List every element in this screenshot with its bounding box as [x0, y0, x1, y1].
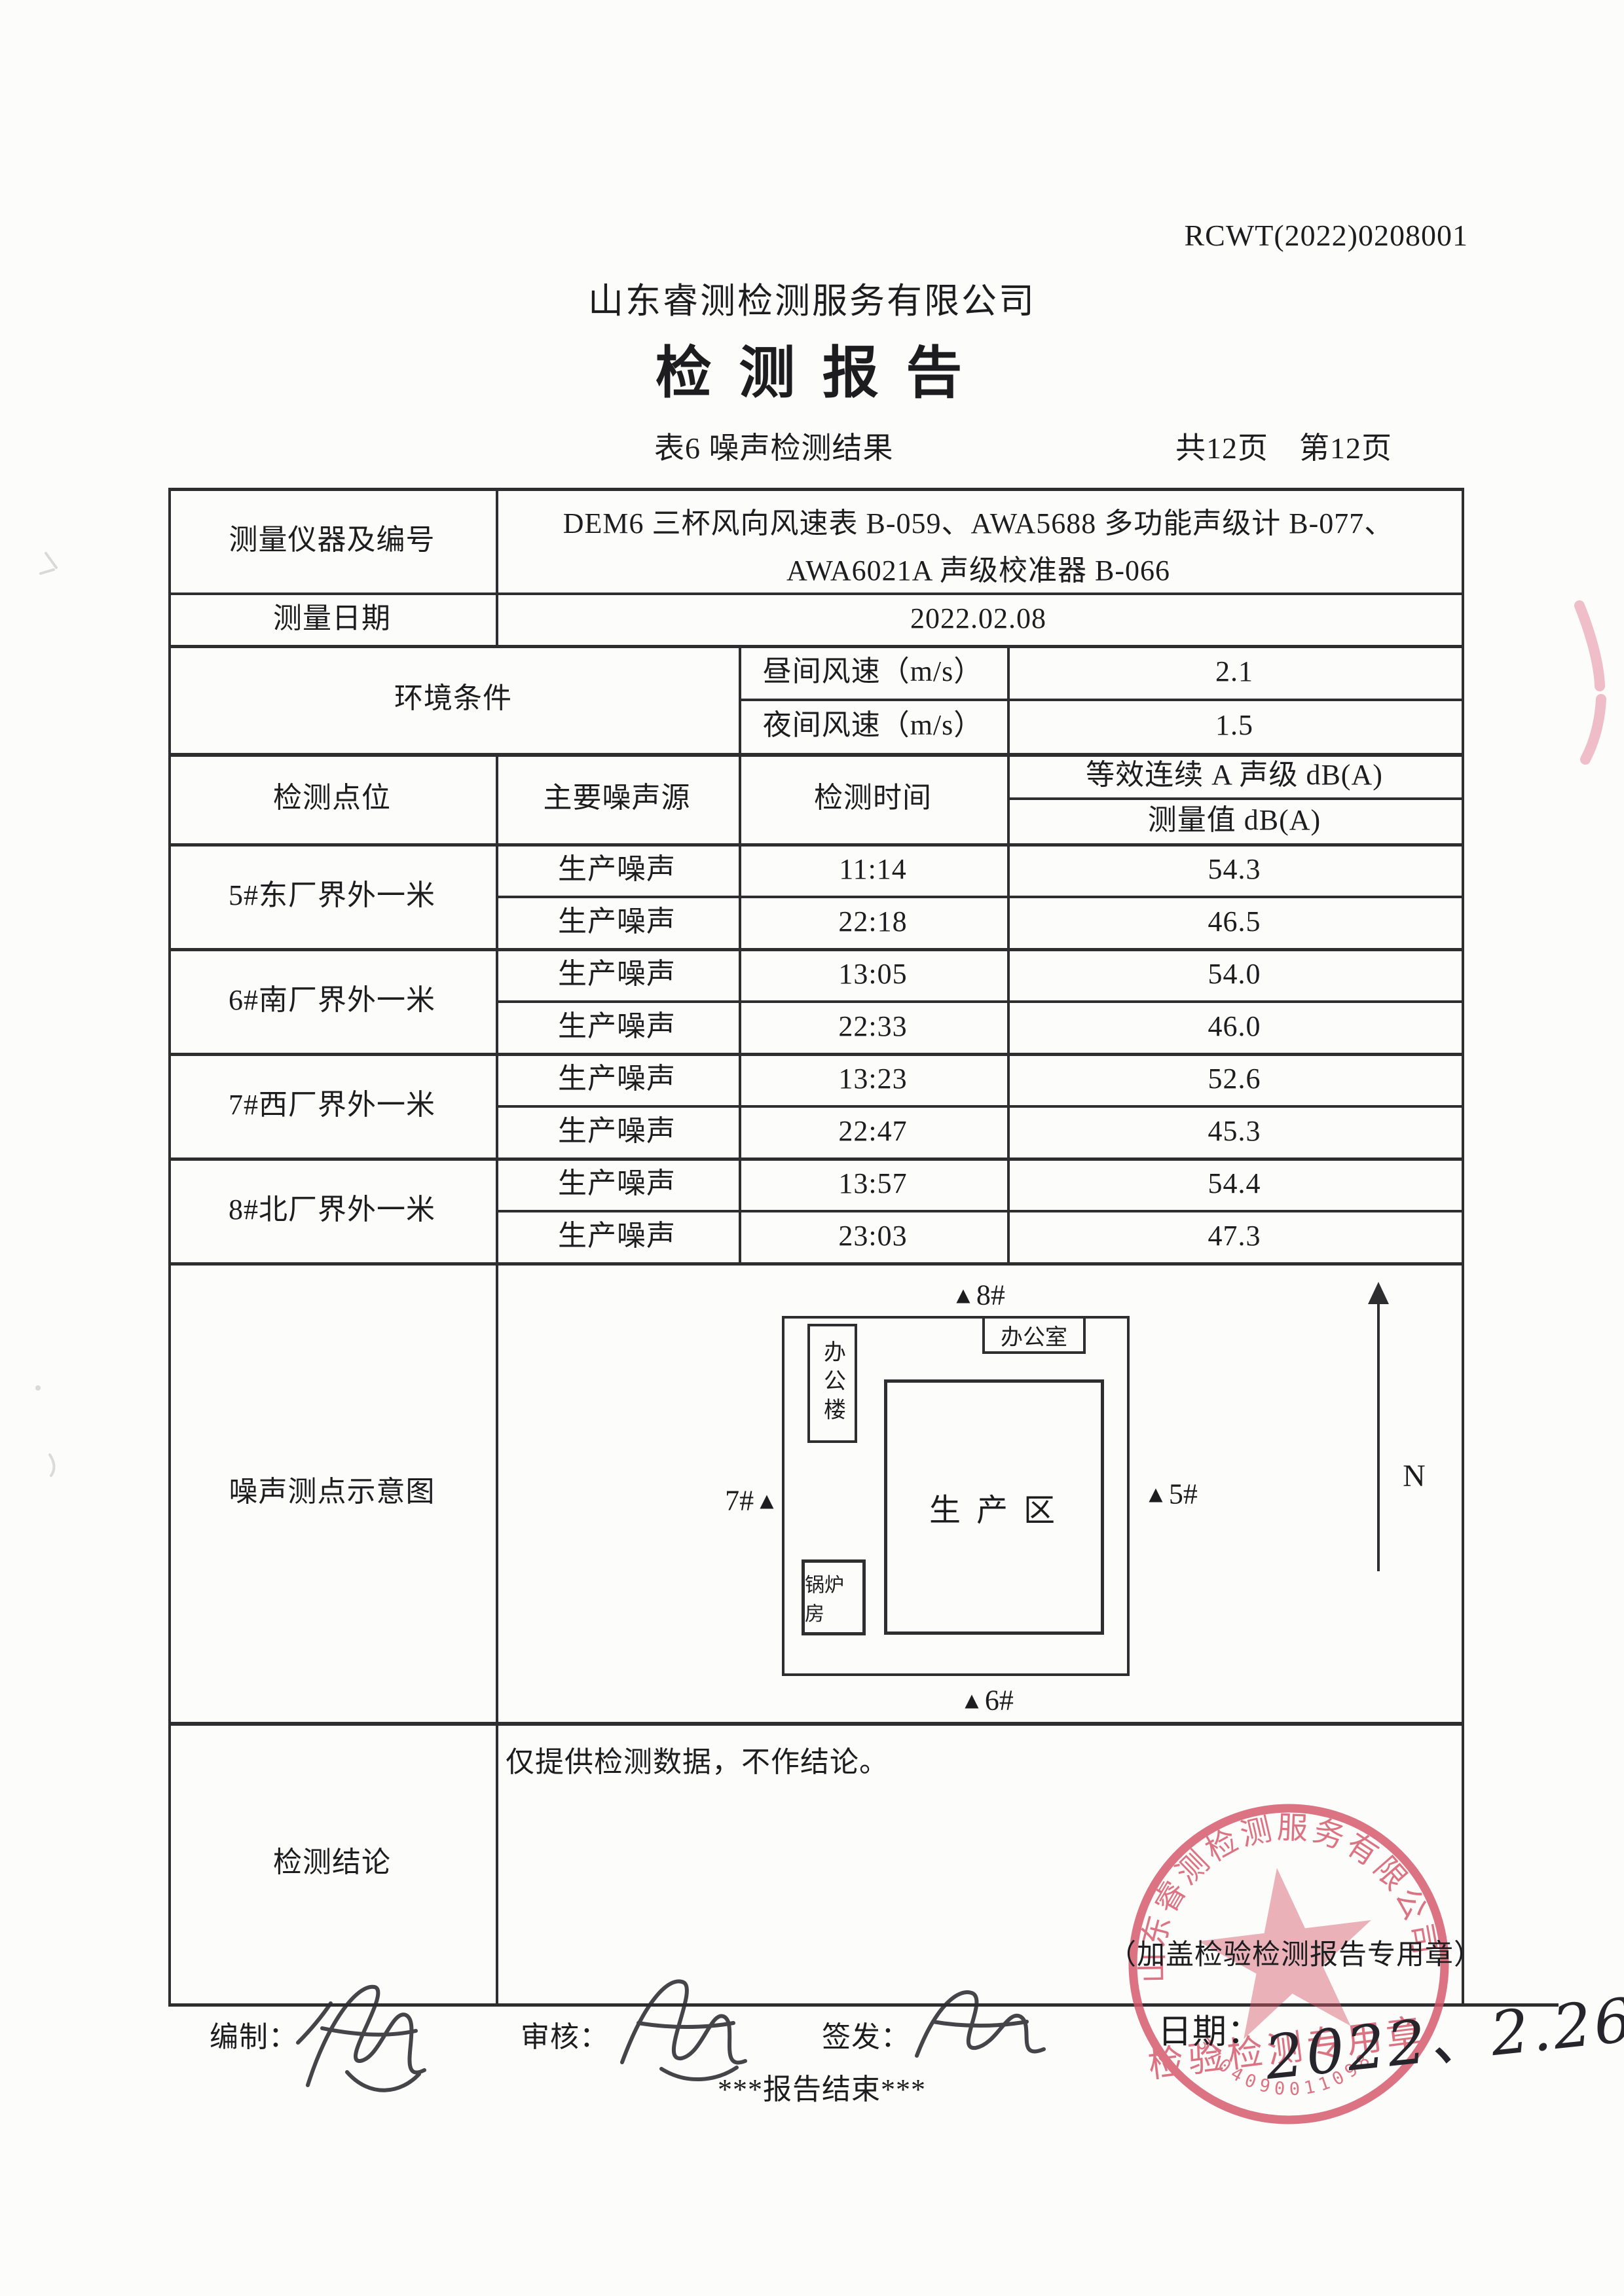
boiler-room-box: 锅炉房 [802, 1559, 866, 1635]
page-indicator: 共12页 第12页 [1175, 433, 1392, 464]
col-header-time: 检测时间 [814, 784, 932, 812]
grid-line [168, 1157, 1464, 1161]
col-header-source: 主要噪声源 [544, 784, 691, 812]
cell-day-wind-label: 昼间风速（m/s） [763, 657, 984, 686]
row-source: 生产噪声 [558, 1012, 676, 1041]
marker-label: 5# [1169, 1478, 1198, 1511]
grid-line [739, 699, 1464, 701]
row-time: 22:47 [838, 1117, 907, 1146]
col-header-value: 测量值 dB(A) [1148, 806, 1321, 835]
cell-instrument-label: 测量仪器及编号 [229, 526, 435, 555]
north-label: N [1403, 1461, 1426, 1492]
seal-note: （加盖检验检测报告专用章） [1108, 1932, 1483, 1973]
row-value: 45.3 [1208, 1117, 1261, 1146]
triangle-icon: ▲ [960, 1688, 984, 1712]
triangle-icon: ▲ [755, 1489, 779, 1512]
grid-line [496, 1105, 1464, 1108]
grid-line [496, 1210, 1464, 1212]
company-name: 山东睿测检测服务有限公司 [588, 283, 1036, 319]
row-source: 生产噪声 [558, 1222, 676, 1250]
cell-instrument-line2: AWA6021A 声级校准器 B-066 [786, 556, 1170, 585]
table-caption: 表6 噪声检测结果 [654, 433, 894, 464]
grid-line [496, 1000, 1464, 1003]
row-point-label: 8#北厂界外一米 [229, 1195, 435, 1224]
report-page: RCWT(2022)0208001 山东睿测检测服务有限公司 检 测 报 告 表… [0, 0, 1624, 2296]
row-source: 生产噪声 [558, 907, 676, 936]
grid-line [168, 592, 1464, 595]
grid-line [1007, 797, 1464, 800]
marker-label: 7# [725, 1484, 754, 1518]
marker-point-7: 7#▲ [725, 1484, 779, 1518]
row-value: 46.0 [1208, 1012, 1261, 1041]
office-building-box: 办公楼 [807, 1324, 857, 1443]
marker-point-6: ▲6# [960, 1684, 1014, 1717]
cell-date-label: 测量日期 [273, 604, 391, 633]
production-area-box: 生 产 区 [884, 1379, 1104, 1635]
grid-line [168, 948, 1464, 951]
issued-signature [917, 1992, 1044, 2056]
col-header-level: 等效连续 A 声级 dB(A) [1086, 761, 1383, 790]
cell-date-value: 2022.02.08 [910, 604, 1046, 633]
office-room-label: 办公室 [1001, 1319, 1067, 1351]
grid-line [168, 488, 171, 2007]
scan-artifact-marks [35, 553, 56, 1476]
production-area-label: 生 产 区 [929, 1484, 1059, 1530]
north-arrow-head-icon [1368, 1282, 1389, 1304]
reviewed-signature [622, 1981, 745, 2079]
marker-label: 8# [976, 1279, 1005, 1312]
prepared-label: 编制： [210, 2023, 298, 2052]
conclusion-text: 仅提供检测数据，不作结论。 [506, 1748, 889, 1777]
row-time: 23:03 [838, 1222, 907, 1250]
marker-point-5: ▲5# [1144, 1478, 1198, 1511]
grid-line [1007, 645, 1010, 1266]
row-point-label: 7#西厂界外一米 [229, 1091, 435, 1120]
grid-line [496, 488, 498, 645]
diagram-row-label: 噪声测点示意图 [229, 1478, 435, 1506]
grid-line [168, 843, 1464, 847]
row-source: 生产噪声 [558, 1065, 676, 1093]
grid-line [496, 753, 498, 2007]
office-building-label: 办公楼 [817, 1340, 849, 1427]
row-time: 13:57 [838, 1169, 907, 1198]
row-point-label: 6#南厂界外一米 [229, 986, 435, 1015]
cell-night-wind-value: 1.5 [1215, 711, 1253, 740]
grid-line [168, 488, 1464, 491]
grid-line [168, 1053, 1464, 1056]
row-source: 生产噪声 [558, 1117, 676, 1146]
row-point-label: 5#东厂界外一米 [229, 881, 435, 910]
report-title: 检 测 报 告 [655, 345, 969, 401]
row-value: 52.6 [1208, 1065, 1261, 1093]
row-value: 54.3 [1208, 855, 1261, 884]
col-header-point: 检测点位 [273, 784, 391, 812]
grid-line [496, 896, 1464, 898]
north-arrow-line [1377, 1303, 1380, 1571]
reviewed-label: 审核： [521, 2023, 609, 2052]
cell-env-label: 环境条件 [394, 684, 512, 713]
report-end-text: ***报告结束*** [718, 2075, 926, 2104]
issued-label: 签发： [822, 2023, 910, 2052]
triangle-icon: ▲ [1144, 1482, 1168, 1506]
row-value: 46.5 [1208, 907, 1261, 936]
row-source: 生产噪声 [558, 855, 676, 884]
triangle-icon: ▲ [951, 1283, 975, 1307]
row-source: 生产噪声 [558, 960, 676, 989]
office-room-box: 办公室 [982, 1316, 1086, 1354]
row-source: 生产噪声 [558, 1169, 676, 1198]
marker-label: 6# [985, 1684, 1014, 1717]
grid-line [739, 645, 741, 1266]
grid-line [168, 645, 1464, 648]
row-time: 13:23 [838, 1065, 907, 1093]
conclusion-row-label: 检测结论 [273, 1848, 391, 1877]
marker-point-8: ▲8# [951, 1279, 1005, 1312]
grid-line [168, 753, 1464, 757]
grid-line [168, 1262, 1464, 1266]
date-label: 日期： [1158, 2016, 1262, 2050]
cell-instrument-line1: DEM6 三杯风向风速表 B-059、AWA5688 多功能声级计 B-077、 [563, 509, 1393, 538]
row-value: 54.0 [1208, 960, 1261, 989]
cell-day-wind-value: 2.1 [1215, 657, 1253, 686]
row-value: 54.4 [1208, 1169, 1261, 1198]
report-number: RCWT(2022)0208001 [1184, 221, 1468, 251]
row-time: 22:33 [838, 1012, 907, 1041]
grid-line [168, 1722, 1464, 1726]
edge-stamp-fragment [1579, 606, 1601, 759]
boiler-room-label: 锅炉房 [805, 1569, 862, 1626]
grid-line [1462, 488, 1464, 2007]
cell-night-wind-label: 夜间风速（m/s） [763, 711, 984, 740]
row-time: 22:18 [838, 907, 907, 936]
row-value: 47.3 [1208, 1222, 1261, 1250]
row-time: 11:14 [839, 855, 907, 884]
row-time: 13:05 [838, 960, 907, 989]
prepared-signature [298, 1987, 424, 2090]
